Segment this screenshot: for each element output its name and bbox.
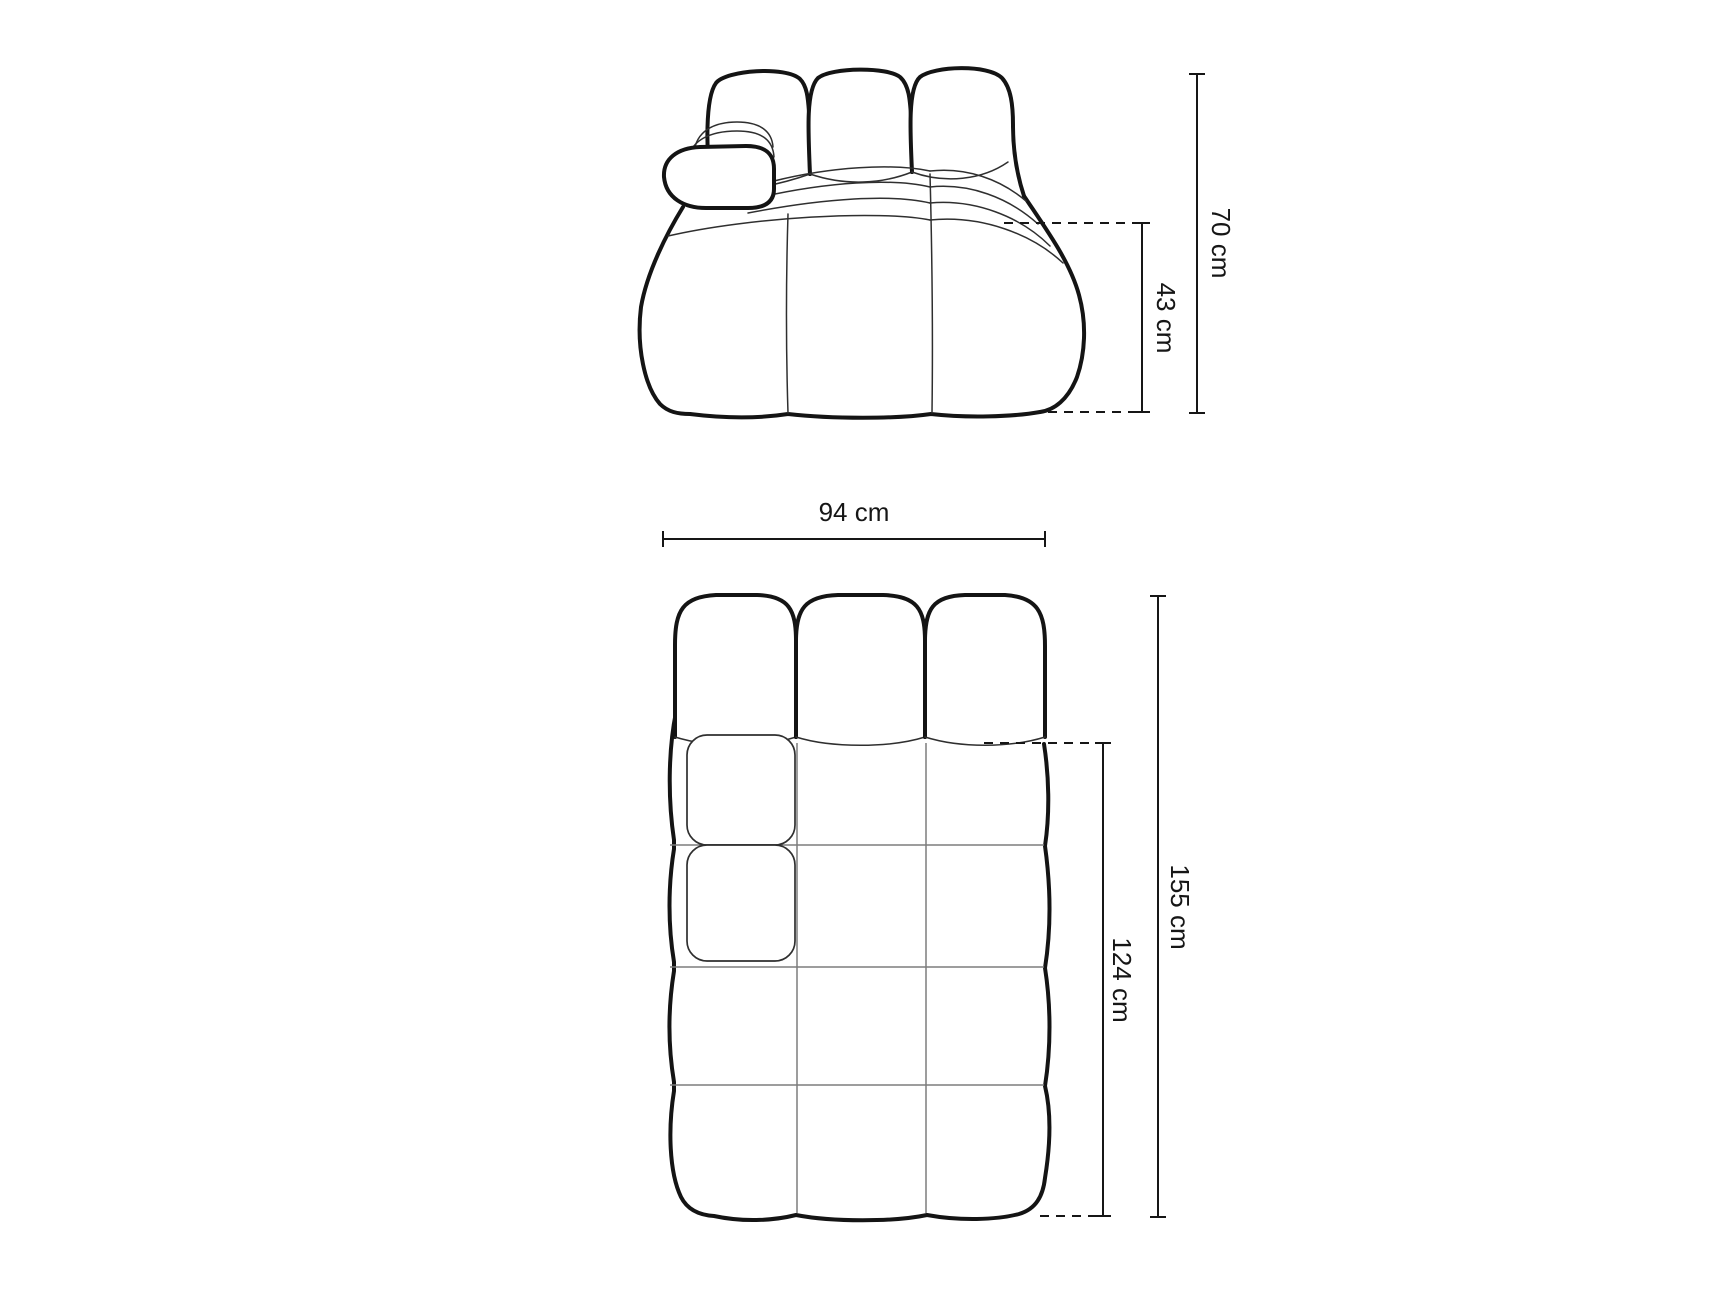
plan-backrest-cushion-fill [925,595,1045,745]
front-view-drawing: 43 cm 70 cm [640,68,1236,418]
dimension-seat-depth: 124 cm [984,743,1137,1216]
dimension-label-155cm: 155 cm [1165,864,1195,949]
seat-vertical-seam [930,174,932,413]
dimension-width: 94 cm [663,497,1045,547]
plan-armrest-cushion [687,735,795,845]
dimension-overall-depth: 155 cm [1150,596,1195,1217]
dimension-line-70cm [1189,74,1205,413]
plan-armrest-cushion [687,845,795,961]
plan-armrest [687,735,795,961]
plan-backrest [675,595,1045,745]
dimension-line-94cm [663,531,1045,547]
backrest-cushion-fill [808,70,912,182]
seat-roll-line [761,182,930,197]
dimension-label-70cm: 70 cm [1206,208,1236,279]
dimension-overall-height: 70 cm [1189,74,1236,413]
plan-backrest-cushion-fill [796,595,925,745]
seat-front-roll-line [668,215,930,236]
dimension-drawing-canvas: 43 cm 70 cm 94 cm [0,0,1732,1299]
front-right-edge [1024,196,1084,412]
dimension-seat-height: 43 cm [1004,223,1181,412]
dimension-line-43cm [1134,223,1150,412]
dimension-label-94cm: 94 cm [819,497,890,527]
seat-vertical-seam [787,214,789,413]
seat-roll-line [748,198,930,213]
dimension-line-155cm [1150,596,1166,1217]
top-view-drawing: 94 cm [663,497,1195,1220]
armrest-pillow [664,146,774,208]
front-left-edge [640,207,690,414]
front-body-silhouette [640,196,1084,418]
dimension-label-124cm: 124 cm [1107,937,1137,1022]
sofa-dimension-diagram: 43 cm 70 cm 94 cm [0,0,1732,1299]
dimension-label-43cm: 43 cm [1151,283,1181,354]
plan-backrest-cushion-fill [675,595,796,745]
front-bottom-edge [690,412,1040,418]
